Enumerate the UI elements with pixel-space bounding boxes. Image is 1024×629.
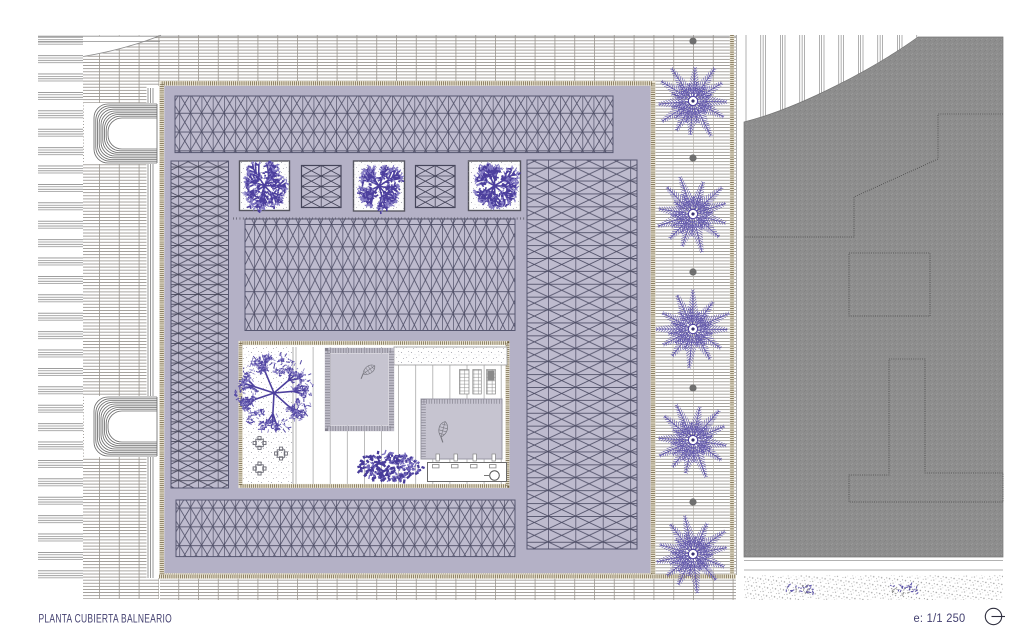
svg-text:e: 1/1 250: e: 1/1 250	[914, 611, 966, 625]
svg-text:PLANTA CUBIERTA BALNEARIO: PLANTA CUBIERTA BALNEARIO	[39, 612, 173, 626]
